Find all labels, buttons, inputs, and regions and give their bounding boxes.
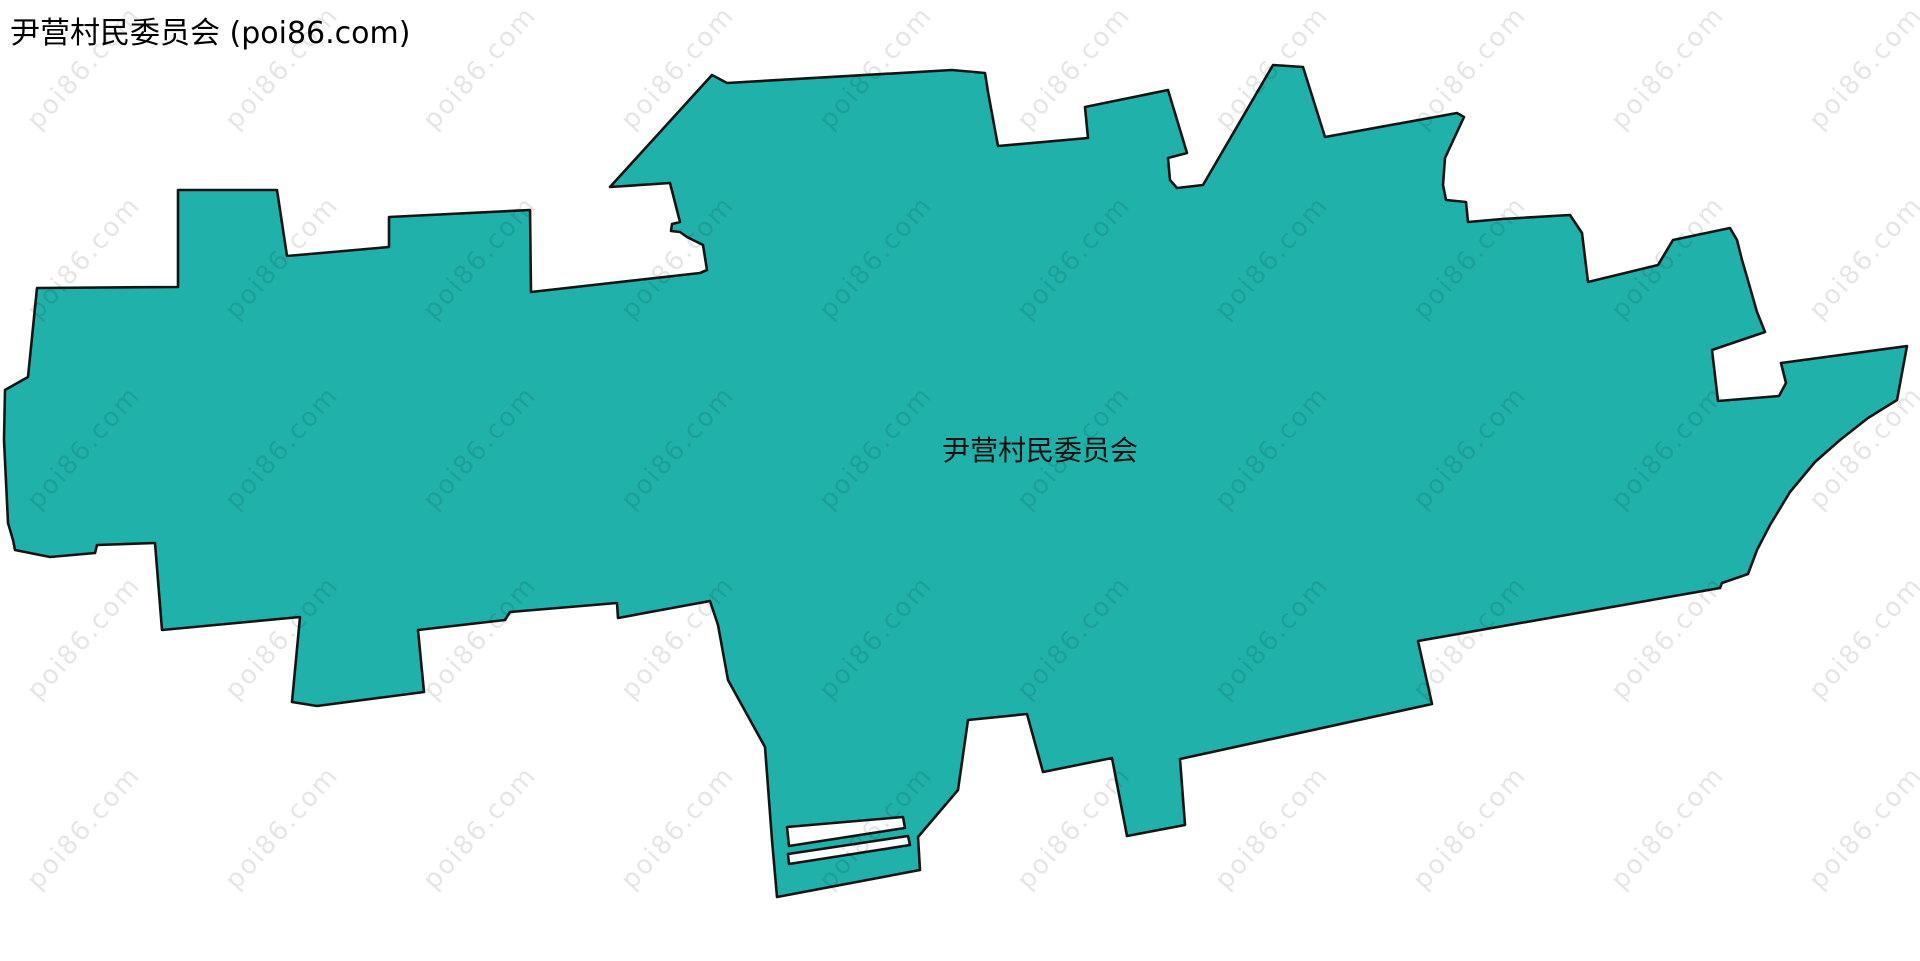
map-canvas: poi86.compoi86.compoi86.compoi86.compoi8… (0, 0, 1920, 961)
region-label: 尹营村民委员会 (942, 429, 1138, 469)
region-polygon (4, 65, 1907, 897)
page-title: 尹营村民委员会 (poi86.com) (10, 8, 410, 52)
boundary-map (0, 0, 1920, 961)
